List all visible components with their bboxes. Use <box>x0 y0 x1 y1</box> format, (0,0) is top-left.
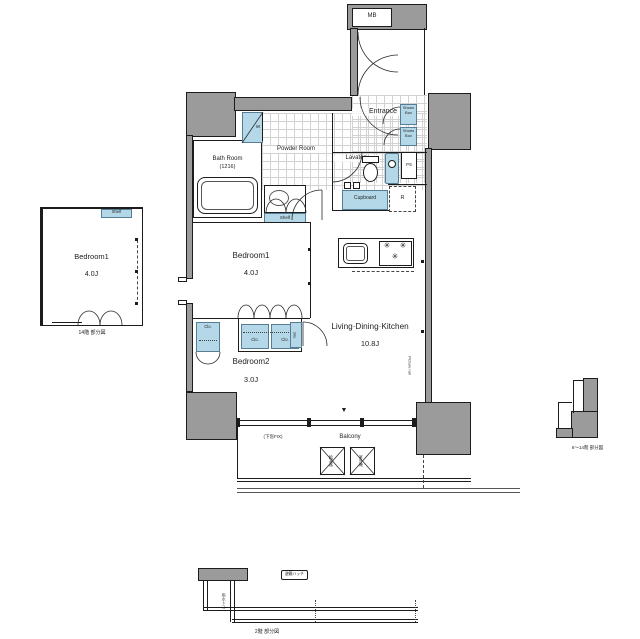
left-opening-frame-top <box>178 277 187 282</box>
ground-line-1 <box>237 488 520 489</box>
fixed-window-label: (下窓FIX) <box>248 434 298 439</box>
water-heater-label: 給湯器 <box>329 451 333 471</box>
pillar-top-right <box>428 93 471 150</box>
pipe-space-label: PS <box>401 162 417 167</box>
balcony-label: Balcony <box>320 434 380 441</box>
burner-icon: ✳ <box>389 252 401 261</box>
floor2-line-h1 <box>203 607 418 608</box>
balcony-left-wall <box>237 425 238 479</box>
ground-line-2 <box>237 492 520 493</box>
balcony-rail-outer <box>237 478 471 479</box>
wall-tick <box>421 260 424 263</box>
ldk-size: 10.8J <box>320 340 420 349</box>
floor2-hatch-label: 避難ハッチ <box>281 572 308 576</box>
floor14-caption: 14階 部分図 <box>52 331 132 337</box>
floor6-14-wall-tab <box>556 428 573 438</box>
burner-icon: ✳ <box>381 241 393 250</box>
floor2-line-h3 <box>232 619 418 620</box>
shoes-box-2-label: Shoes Box <box>400 129 417 138</box>
floor2-line-h2 <box>203 610 418 611</box>
hall-fitting-2 <box>353 182 360 189</box>
wall-bath-powder <box>262 113 263 141</box>
floor2-wall-bar <box>198 568 248 581</box>
shoes-box-1-label: Shoes Box <box>400 106 417 115</box>
kitchen-clearance-line <box>352 271 414 272</box>
pillar-top-left <box>186 92 236 137</box>
floor14-wall-tick <box>135 238 138 241</box>
basin-drain <box>388 160 396 168</box>
wall-bedroom1-top <box>193 222 310 223</box>
window-line-outer <box>237 420 416 421</box>
floor14-room-outline <box>40 207 143 326</box>
fridge-label: R <box>389 195 416 201</box>
floor14-room-size: 4.0J <box>45 271 138 279</box>
window-mullion <box>307 418 311 427</box>
pillar-bottom-right <box>416 402 471 455</box>
window-mullion <box>360 418 364 427</box>
kitchen-sink-inner <box>346 246 365 261</box>
hall-fitting-1 <box>344 182 351 189</box>
pillar-bottom-left <box>186 392 237 440</box>
floor6-14-outline-3 <box>558 402 559 428</box>
corridor-right-line <box>424 28 425 95</box>
toilet-bowl <box>363 163 378 182</box>
bath-room-label: Bath Room <box>195 156 260 163</box>
floor2-line-v1 <box>203 581 204 610</box>
closet-1-label: Clo. <box>241 338 269 343</box>
closet-hanger-line <box>199 340 217 341</box>
floor2-dotted-v2 <box>415 600 416 622</box>
wall-fridge-top <box>388 184 427 185</box>
wall-right <box>425 148 432 404</box>
bedroom2-size: 3.0J <box>195 376 307 385</box>
storage-label: Sto. <box>292 326 297 346</box>
ac-outdoor-label: 室外機 <box>359 451 363 471</box>
floor6-14-caption: 6〜14階 部分図 <box>545 445 630 450</box>
wash-basin <box>385 153 399 184</box>
floor2-line-v4 <box>234 581 235 622</box>
bedroom2-label: Bedroom2 <box>195 357 307 366</box>
closet-hanger-line <box>243 332 297 333</box>
cupboard-label: Cupboard <box>342 196 388 202</box>
wall-left-upper <box>186 135 193 279</box>
wall-bedroom1-ldk <box>310 222 311 318</box>
floor6-14-outline-2 <box>573 380 584 381</box>
floor6-14-wall-block <box>571 411 598 438</box>
floor2-dotted-v1 <box>315 600 316 622</box>
floor2-line-v2 <box>207 581 208 610</box>
window-line-inner <box>237 425 416 426</box>
left-opening-frame-bottom <box>178 300 187 305</box>
floor14-room-label: Bedroom1 <box>45 253 138 262</box>
floor14-wall-tick <box>135 270 138 273</box>
toilet-tank <box>362 156 379 163</box>
entry-marker: ▼ <box>336 407 352 415</box>
shelf-label: Shelf <box>264 215 306 220</box>
burner-icon: ✳ <box>397 241 409 250</box>
floor6-14-outline-1 <box>573 380 574 413</box>
ldk-label: Living·Dining·Kitchen <box>320 322 420 331</box>
vanity-sink <box>269 190 289 206</box>
balcony-rail-inner <box>237 481 471 482</box>
floor2-drain-label: 雨水トヨ <box>221 584 226 618</box>
meter-box-label: MB <box>352 13 392 20</box>
closet-3-label: Clo. <box>196 325 220 330</box>
balcony-partition <box>423 455 424 488</box>
picture-rail-label: Picture rail <box>407 342 412 388</box>
wall-top <box>234 97 352 111</box>
floor14-bottom-window <box>52 322 82 323</box>
wall-corridor-left <box>350 28 358 96</box>
bedroom1-label: Bedroom1 <box>195 251 307 260</box>
wall-lavatory-top <box>332 152 427 153</box>
slide-door-tick <box>308 282 311 285</box>
powder-room-label: Powder Room <box>266 146 326 153</box>
wall-left-lower <box>186 303 193 392</box>
wall-tick <box>421 330 424 333</box>
floor2-line-h4 <box>232 622 418 623</box>
wall-ldk-top <box>332 210 392 211</box>
bath-size-label: (1216) <box>195 164 260 170</box>
floor6-14-outline-4 <box>558 402 572 403</box>
slide-door-tick <box>308 248 311 251</box>
floorplan-canvas: MB Entrance Shoes Box Shoes Box PS Lavat… <box>0 0 640 639</box>
wall-hall-divider <box>332 113 333 210</box>
floor14-wall-tick <box>135 302 138 305</box>
floor14-shelf-label: Shelf <box>101 210 132 215</box>
bathtub-inner <box>201 181 254 210</box>
floor2-line-v3 <box>230 581 231 622</box>
floor2-caption: 2階 部分図 <box>238 630 296 636</box>
window-mullion <box>412 418 416 427</box>
bedroom1-size: 4.0J <box>195 269 307 278</box>
